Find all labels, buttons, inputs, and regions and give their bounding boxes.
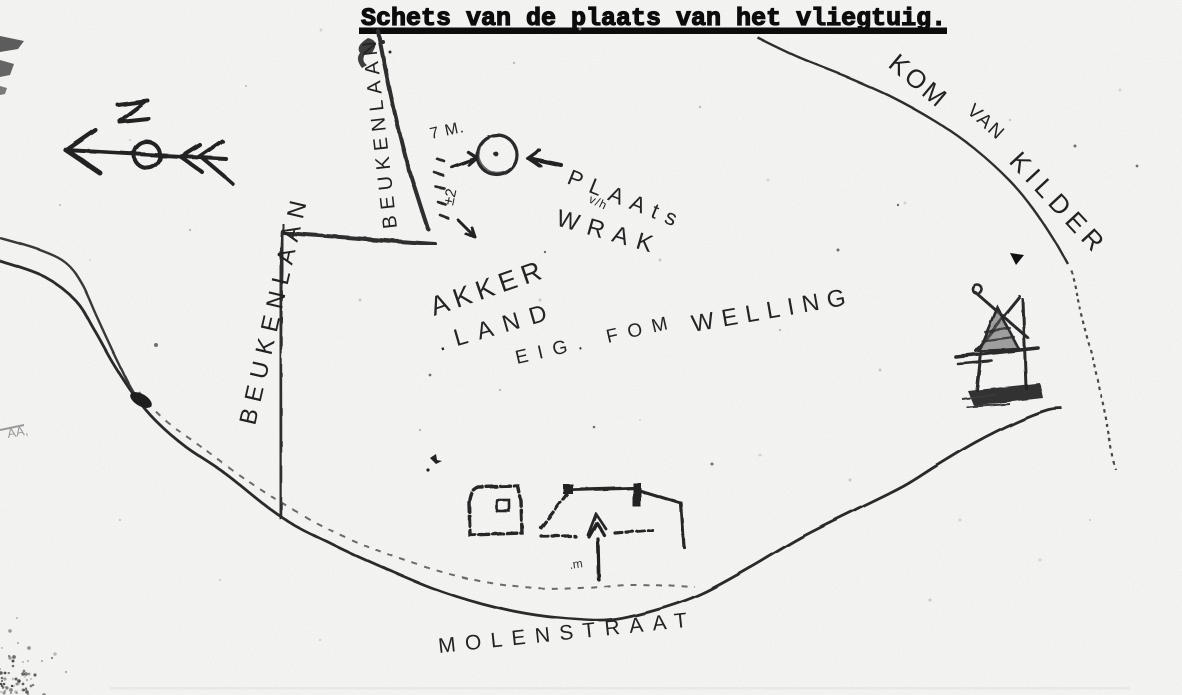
svg-text:±2: ±2	[440, 187, 460, 207]
svg-text:.m: .m	[568, 556, 583, 572]
